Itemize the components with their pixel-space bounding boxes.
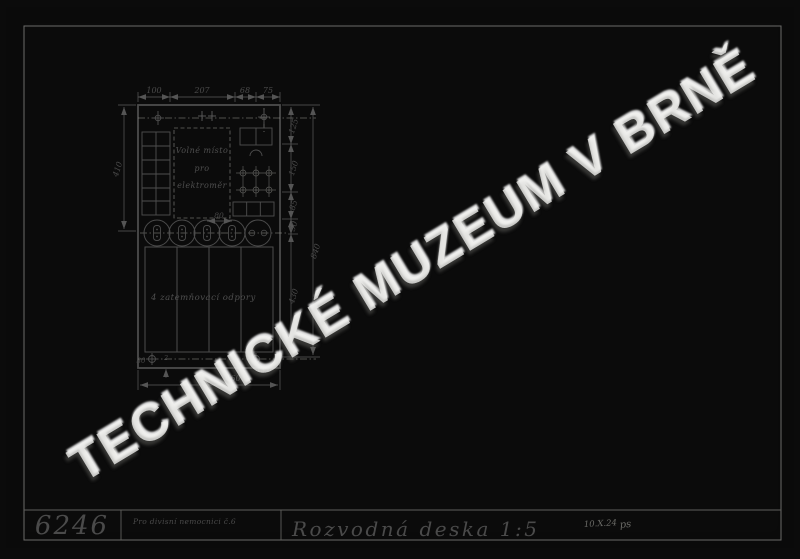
dim-left-410: 410: [111, 161, 125, 179]
dim-top-3: 68: [240, 86, 250, 95]
terminal-cluster: [236, 166, 276, 197]
dim-right-1: 125: [287, 118, 300, 135]
mounting-hole-marks-top: [152, 110, 270, 125]
dim-right-4: 50: [288, 220, 300, 232]
resistor-label: 4 zatemňovací odpory: [150, 292, 256, 303]
dim-right-3: 85: [288, 199, 300, 211]
dim-right-overall: 840: [309, 243, 322, 260]
drawing-date: 10.X.24: [584, 518, 618, 530]
dim-hole-right: 13,6: [257, 366, 271, 374]
dim-top-2: 207: [193, 86, 210, 95]
dim-hole-note: 2: [163, 354, 168, 362]
dim-top-1: 100: [146, 86, 161, 95]
dim-pitch-80: 80: [214, 211, 224, 220]
dim-hole-left: 30: [137, 357, 146, 365]
dim-chain-right: [282, 105, 320, 357]
meter-space-label-2: pro: [194, 164, 209, 173]
terminal-grid: [142, 132, 170, 215]
meter-space-label-1: Volné místo: [176, 146, 229, 155]
signature: ps: [619, 519, 632, 531]
drawing-title: Rozvodná deska 1:5: [291, 517, 539, 541]
project-name: Pro divisní nemocnici č.6: [132, 517, 236, 526]
switch-block-upper: [240, 128, 272, 156]
drawing-number: 6246: [35, 511, 109, 541]
dim-top-4: 75: [263, 86, 273, 95]
drawing-sheet: Volné místo pro elektroměr: [0, 0, 800, 559]
dim-right-5: 430: [287, 288, 301, 306]
switch-block-lower: [233, 202, 274, 216]
dim-right-2: 150: [287, 160, 300, 177]
dim-bottom-overall: 460: [224, 374, 240, 383]
meter-space-label-3: elektroměr: [177, 181, 228, 190]
meter-space-box: Volné místo pro elektroměr: [174, 128, 230, 218]
